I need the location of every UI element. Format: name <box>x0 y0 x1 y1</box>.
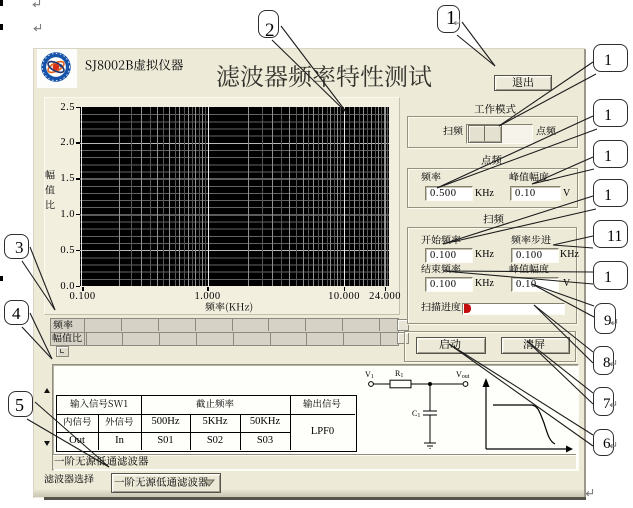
svg-text:C1: C1 <box>412 409 420 419</box>
svg-text:Vout: Vout <box>456 370 470 380</box>
svg-text:V1: V1 <box>365 370 374 380</box>
svg-text:R1: R1 <box>395 369 403 379</box>
